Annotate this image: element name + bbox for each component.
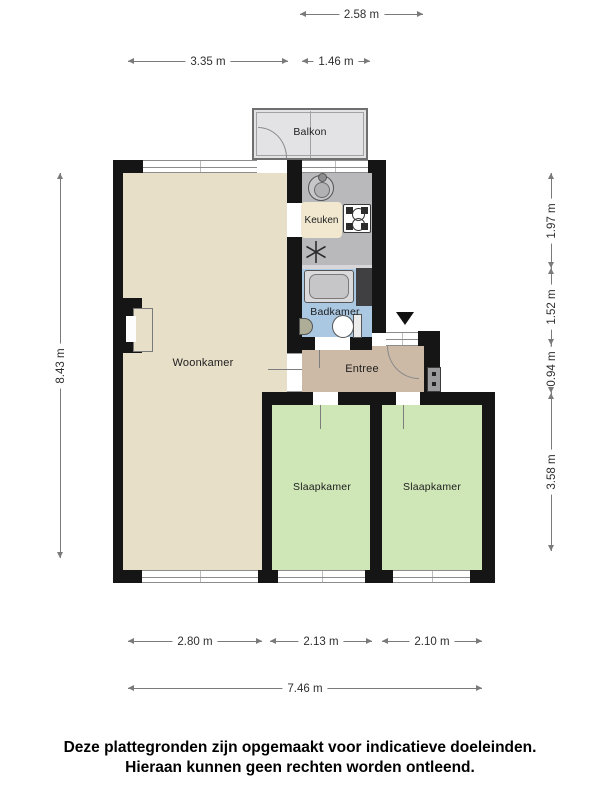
door-leaf [403, 405, 404, 429]
wall-segment [482, 392, 495, 583]
window [278, 570, 365, 583]
room-label-entree: Entree [345, 363, 379, 375]
door-opening [315, 337, 350, 350]
room-label-slaapkamer-left: Slaapkamer [293, 481, 351, 493]
chimney-inset [133, 308, 153, 352]
burner-ring [352, 218, 365, 231]
dimension-top-left: 3.35 m [128, 61, 288, 62]
bathtub-icon [304, 270, 354, 303]
disclaimer-line-1: Deze plattegronden zijn opgemaakt voor i… [0, 738, 600, 758]
room-label-woonkamer: Woonkamer [173, 357, 234, 369]
dimension-value: 3.35 m [185, 55, 230, 69]
entrance-door-opening [386, 332, 418, 346]
wall-segment [372, 160, 386, 333]
dimension-right-badkamer: 1.52 m [551, 268, 552, 345]
entrance-arrow-icon [396, 312, 414, 325]
wall-segment [370, 392, 382, 583]
dimension-value: 1.52 m [545, 284, 559, 329]
wall-segment [418, 331, 440, 346]
disclaimer-line-2: Hieraan kunnen geen rechten worden ontle… [0, 758, 600, 778]
door-opening [396, 392, 420, 405]
kitchen-sink-icon [308, 175, 334, 201]
boiler-asterisk-icon [303, 239, 329, 265]
dimension-bottom-slaapkamer-right: 2.10 m [382, 641, 482, 642]
disclaimer-text: Deze plattegronden zijn opgemaakt voor i… [0, 738, 600, 778]
door-opening [287, 353, 302, 392]
meter-box-icon [427, 367, 441, 392]
dimension-value: 2.13 m [298, 635, 343, 649]
room-label-badkamer: Badkamer [310, 306, 359, 318]
door-leaf [320, 405, 321, 429]
dimension-bottom-woonkamer: 2.80 m [128, 641, 262, 642]
dimension-value: 2.80 m [172, 635, 217, 649]
window [143, 160, 257, 173]
dimension-bottom-slaapkamer-left: 2.13 m [270, 641, 372, 642]
dimension-value: 1.46 m [313, 55, 358, 69]
door-opening [257, 160, 287, 173]
wall-segment [113, 160, 123, 583]
dimension-top-balcony: 2.58 m [300, 14, 423, 15]
stove-icon [343, 204, 371, 233]
dimension-value: 3.58 m [545, 449, 559, 494]
floorplan-canvas: Keuken Balkon Badkamer Woonkamer Entree … [0, 0, 600, 800]
dimension-right-entree: 0.94 m [551, 345, 552, 393]
dimension-bottom-total: 7.46 m [128, 688, 482, 689]
dimension-value: 0.94 m [545, 346, 559, 391]
dimension-value: 2.10 m [409, 635, 454, 649]
dimension-value: 1.97 m [545, 198, 559, 243]
dimension-value: 7.46 m [282, 682, 327, 696]
wall-segment [287, 160, 302, 203]
keuken-label-box: Keuken [301, 202, 342, 238]
dimension-right-keuken: 1.97 m [551, 173, 552, 268]
bathtub-basin [309, 274, 349, 299]
door-opening [313, 392, 338, 405]
dimension-value: 2.58 m [339, 8, 384, 22]
sink-tap [318, 173, 327, 182]
meter-dot [432, 372, 436, 376]
window [302, 160, 368, 173]
chimney-notch [126, 316, 136, 342]
toilet-icon [332, 315, 354, 338]
passage-opening [287, 203, 302, 237]
sink-basin [314, 182, 330, 198]
door-leaf [268, 369, 302, 370]
wall-segment [113, 160, 143, 173]
room-label-balkon: Balkon [293, 126, 326, 138]
room-label-slaapkamer-right: Slaapkamer [403, 481, 461, 493]
wall-segment [262, 392, 272, 583]
dimension-left-total: 8.43 m [60, 173, 61, 558]
door-leaf [319, 350, 320, 368]
dimension-right-slaapkamer: 3.58 m [551, 393, 552, 551]
dimension-top-right: 1.46 m [302, 61, 370, 62]
dimension-value: 8.43 m [54, 343, 68, 388]
window [393, 570, 470, 583]
meter-dot [432, 382, 436, 386]
shaft [356, 268, 372, 306]
room-label-keuken: Keuken [305, 215, 339, 226]
window [142, 570, 258, 583]
wall-segment [287, 237, 302, 353]
